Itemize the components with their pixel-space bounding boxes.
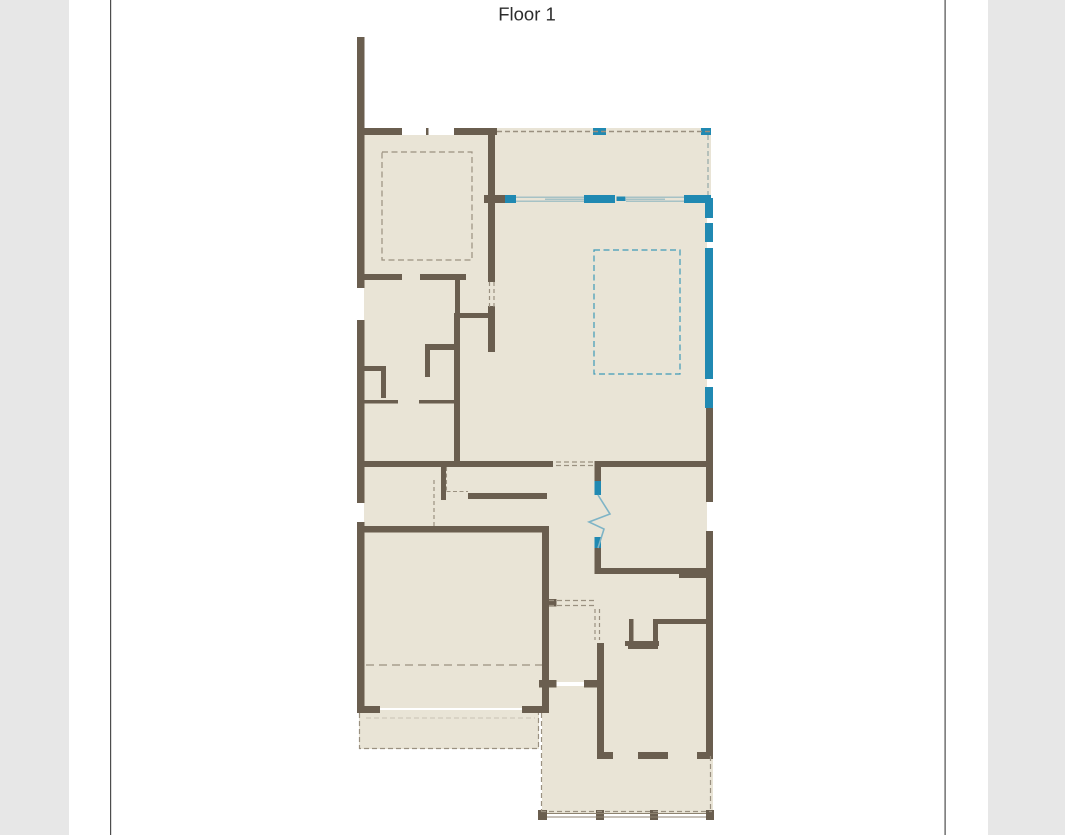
svg-text:Floor 1: Floor 1 [498, 4, 556, 25]
